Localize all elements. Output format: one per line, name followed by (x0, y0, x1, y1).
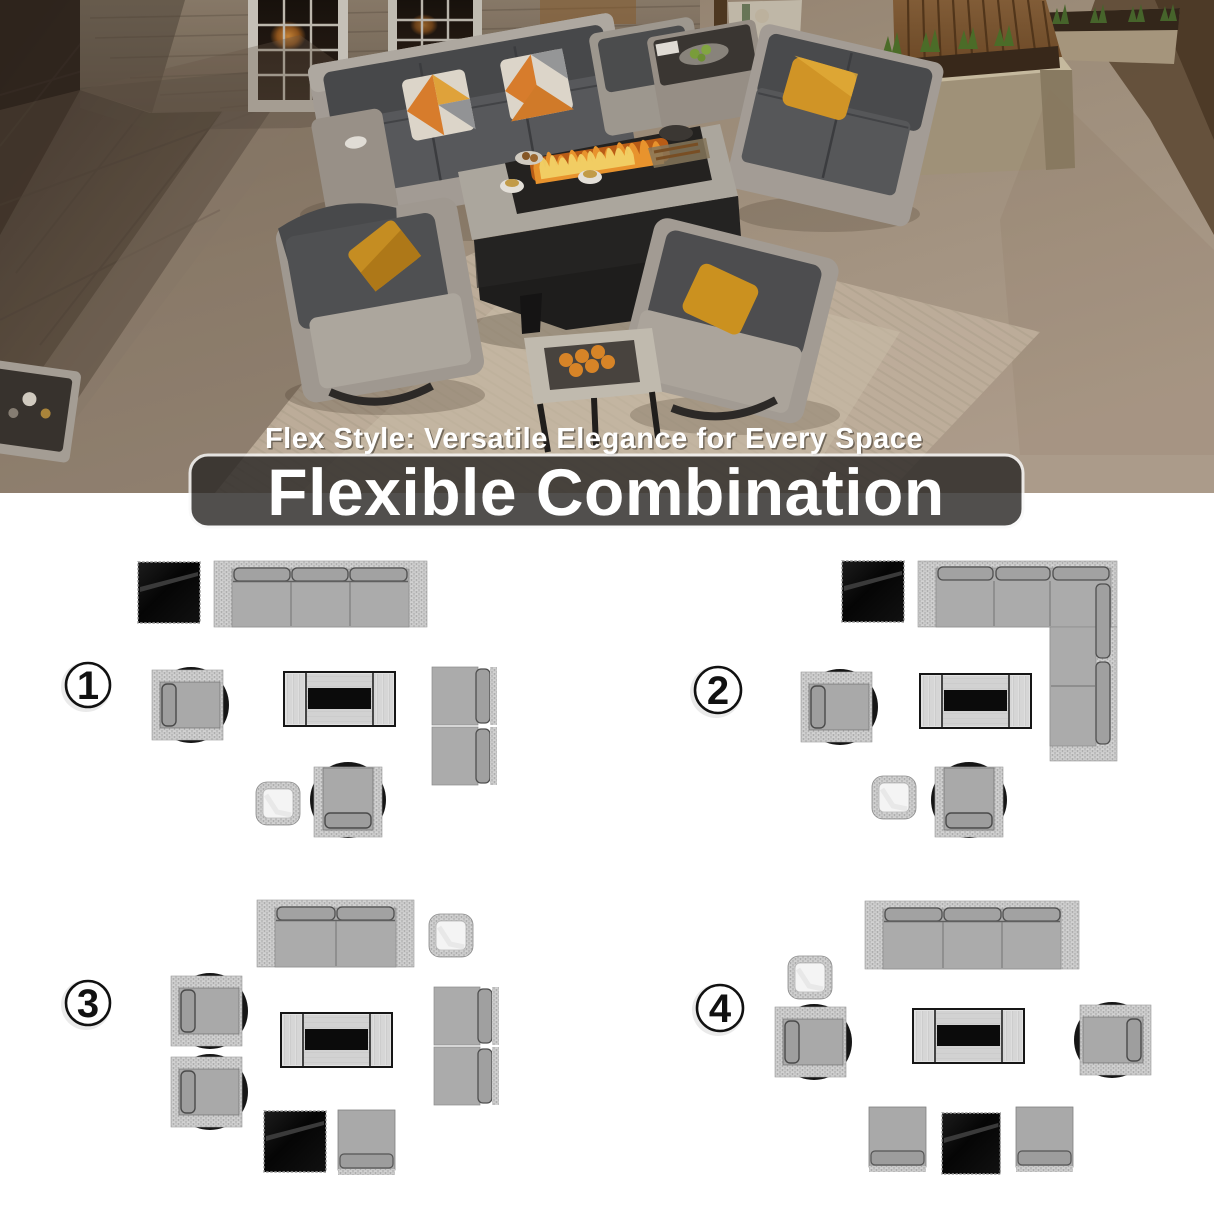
svg-text:2: 2 (707, 669, 729, 713)
svg-text:Flexible Combination: Flexible Combination (267, 455, 944, 529)
svg-text:Flex Style: Versatile Elegance: Flex Style: Versatile Elegance for Every… (265, 423, 923, 455)
svg-text:1: 1 (77, 664, 99, 708)
svg-text:4: 4 (709, 987, 732, 1031)
svg-text:3: 3 (77, 982, 99, 1026)
